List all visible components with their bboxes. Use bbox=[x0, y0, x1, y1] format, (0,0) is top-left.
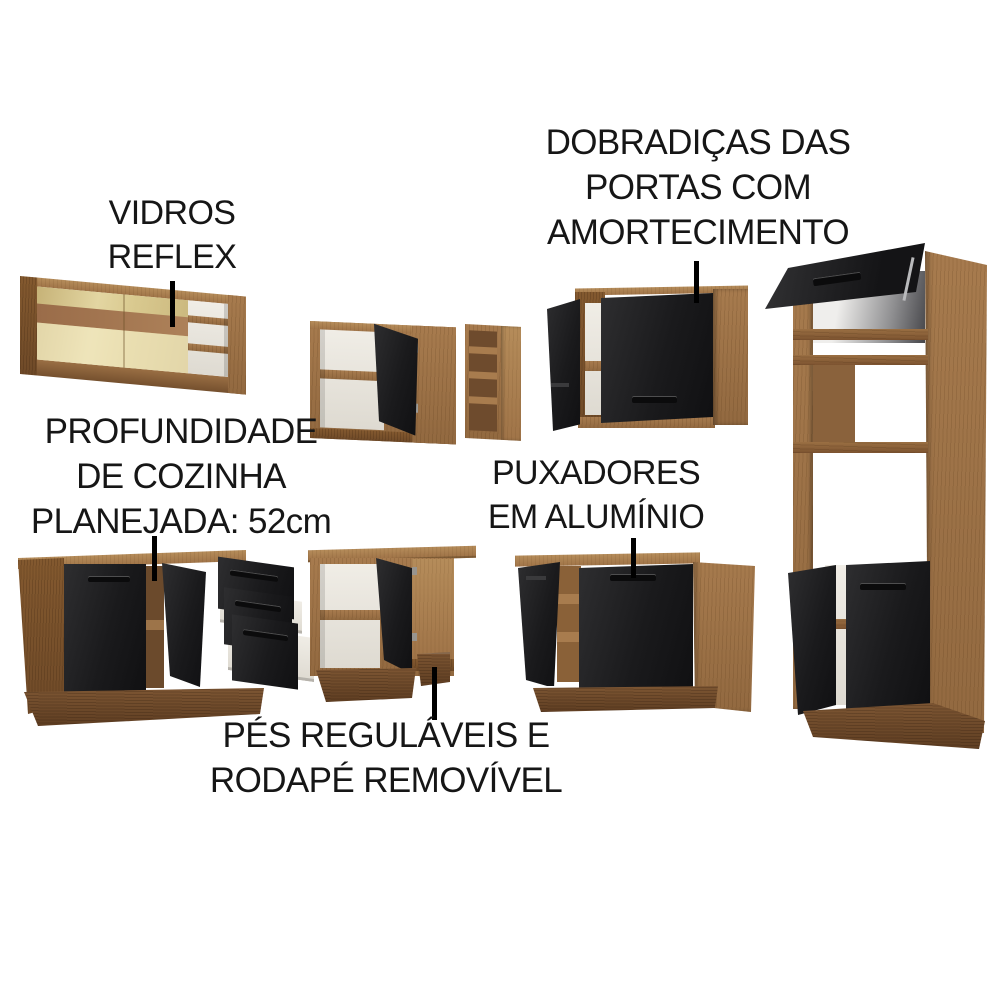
two-door-wall-cabinet bbox=[545, 287, 748, 430]
hinge bbox=[412, 567, 417, 575]
label-dobradicas: DOBRADIÇAS DAS PORTAS COM AMORTECIMENTO bbox=[546, 120, 851, 255]
drawer-base-cabinet bbox=[18, 552, 302, 728]
shelf bbox=[469, 346, 497, 354]
open-interior bbox=[557, 566, 581, 682]
aluminium-handle bbox=[551, 383, 569, 387]
glass-door-seam bbox=[123, 294, 125, 367]
open-interior bbox=[146, 566, 164, 688]
closed-black-door bbox=[579, 564, 693, 694]
cabinet-right-column bbox=[713, 289, 748, 425]
open-shelf-wall-unit bbox=[465, 324, 521, 441]
leader-line-dobradicas bbox=[694, 261, 699, 303]
corner-return-panel bbox=[412, 325, 456, 444]
open-interior bbox=[320, 564, 380, 668]
shelf bbox=[557, 594, 581, 604]
reflex-glass-sliding-doors bbox=[37, 287, 188, 374]
shelf bbox=[188, 315, 228, 326]
cabinet-left-side-panel bbox=[18, 558, 64, 714]
shelf bbox=[793, 329, 928, 340]
shelf bbox=[146, 620, 164, 630]
open-black-door bbox=[162, 563, 206, 687]
shelf bbox=[793, 355, 928, 365]
aluminium-handle bbox=[235, 600, 281, 612]
shelf bbox=[557, 632, 581, 642]
aluminium-handle bbox=[813, 272, 862, 287]
open-black-door bbox=[545, 299, 580, 431]
label-line: PORTAS COM bbox=[546, 165, 851, 210]
label-line: DE COZINHA bbox=[31, 454, 331, 499]
label-line: AMORTECIMENTO bbox=[546, 210, 851, 255]
tower-inner-back bbox=[813, 365, 855, 442]
label-line: PROFUNDIDADE bbox=[31, 409, 331, 454]
tall-oven-tower-cabinet bbox=[765, 243, 987, 753]
aluminium-handle bbox=[860, 583, 906, 590]
label-line: PLANEJADA: 52cm bbox=[31, 499, 331, 544]
leader-line-puxadores bbox=[631, 538, 636, 578]
label-line: PÉS REGULÁVEIS E bbox=[210, 713, 562, 758]
cabinet-left-side-panel bbox=[20, 276, 37, 376]
shelf bbox=[469, 396, 497, 404]
shelf bbox=[320, 369, 384, 381]
removable-plinth bbox=[316, 668, 416, 702]
cubby-column bbox=[469, 330, 497, 431]
product-collage: VIDROS REFLEX DOBRADIÇAS DAS PORTAS COM … bbox=[0, 0, 1000, 1000]
label-line: REFLEX bbox=[108, 235, 237, 279]
closed-black-door bbox=[64, 564, 146, 692]
unit-right-side-panel bbox=[501, 326, 521, 441]
inner-shadow bbox=[320, 564, 325, 668]
label-line: RODAPÉ REMOVÍVEL bbox=[210, 758, 562, 803]
label-line: VIDROS bbox=[108, 191, 237, 235]
aluminium-handle bbox=[88, 576, 130, 582]
open-shelf-section bbox=[188, 300, 228, 377]
removable-plinth bbox=[533, 686, 718, 712]
open-black-door bbox=[518, 562, 560, 686]
label-line: PUXADORES bbox=[488, 451, 704, 495]
shelf bbox=[585, 361, 603, 371]
leader-line-vidros bbox=[170, 281, 175, 327]
shelf bbox=[188, 343, 228, 354]
corner-wall-cabinet bbox=[310, 321, 456, 444]
label-pes-rodape: PÉS REGULÁVEIS E RODAPÉ REMOVÍVEL bbox=[210, 713, 562, 803]
label-line: EM ALUMÍNIO bbox=[488, 495, 704, 539]
drawer-front bbox=[232, 614, 298, 689]
glass-wall-cabinet bbox=[20, 276, 246, 395]
shelf bbox=[793, 442, 928, 453]
label-vidros-reflex: VIDROS REFLEX bbox=[108, 191, 237, 279]
cabinet-right-stile bbox=[228, 295, 246, 395]
aluminium-handle bbox=[230, 569, 278, 582]
open-interior bbox=[585, 303, 603, 415]
label-line: DOBRADIÇAS DAS bbox=[546, 120, 851, 165]
tower-right-side-panel bbox=[925, 249, 987, 733]
shelf bbox=[320, 610, 380, 620]
shelf bbox=[469, 371, 497, 379]
aluminium-handle bbox=[526, 576, 546, 580]
label-profundidade: PROFUNDIDADE DE COZINHA PLANEJADA: 52cm bbox=[31, 409, 331, 544]
aluminium-handle bbox=[243, 629, 288, 641]
closed-black-door bbox=[846, 561, 930, 709]
aluminium-handle bbox=[632, 396, 677, 403]
closed-black-door bbox=[601, 293, 713, 423]
corner-base-cabinet bbox=[308, 546, 480, 726]
label-puxadores: PUXADORES EM ALUMÍNIO bbox=[488, 451, 704, 539]
hinge bbox=[412, 633, 417, 641]
corner-wood-door bbox=[412, 559, 454, 659]
